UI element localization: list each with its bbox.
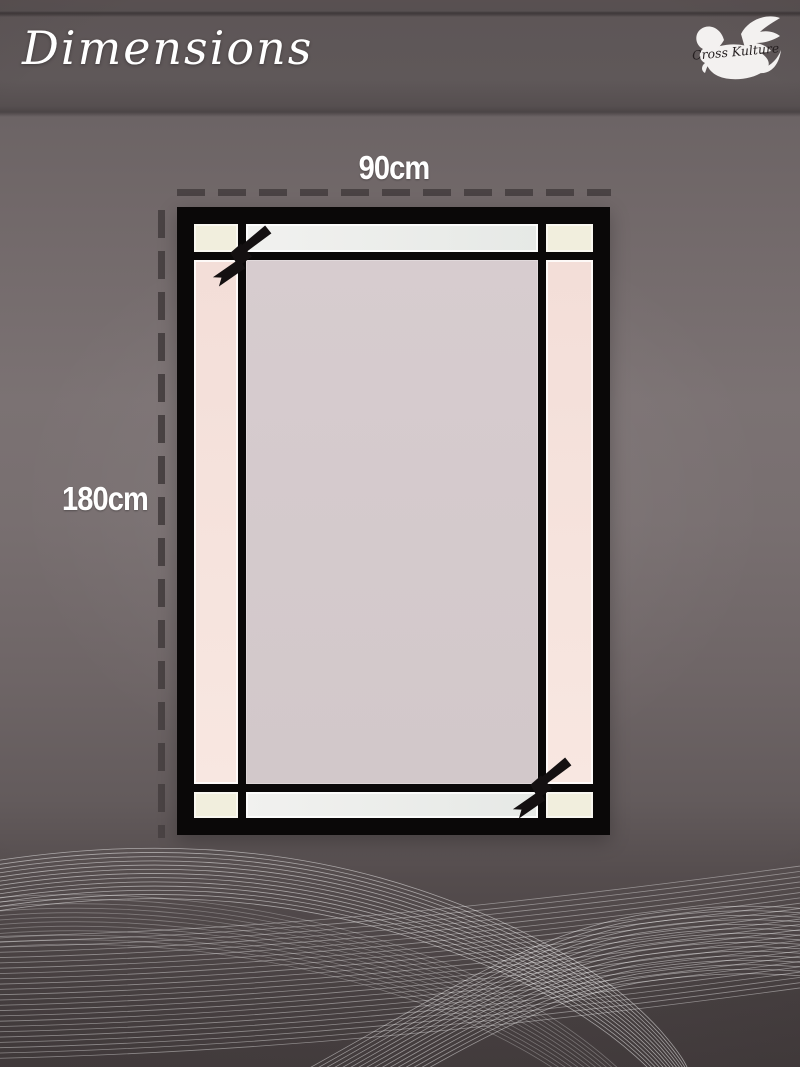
ribbon-bow-icon	[194, 224, 290, 288]
right-rail-panel	[546, 260, 593, 784]
mirror-frame	[177, 207, 610, 835]
decorative-waves	[0, 845, 800, 1067]
frame-grid	[194, 224, 593, 818]
brand-swoosh-icon: Cross Kulture	[684, 10, 788, 92]
mirror-glass-panel	[246, 260, 538, 784]
product-dimensions-page: Dimensions Cross Kulture 90cm 180cm	[0, 0, 800, 1067]
ribbon-bow-icon	[494, 756, 590, 820]
corner-panel-top-right	[546, 224, 593, 252]
corner-panel-bottom-left	[194, 792, 238, 818]
width-dimension-line	[177, 189, 611, 196]
left-rail-panel	[194, 260, 238, 784]
height-dimension-line	[158, 210, 165, 838]
brand-logo: Cross Kulture	[684, 10, 788, 92]
width-label: 90cm	[306, 149, 482, 187]
height-label: 180cm	[52, 480, 158, 518]
page-title: Dimensions	[22, 22, 313, 75]
